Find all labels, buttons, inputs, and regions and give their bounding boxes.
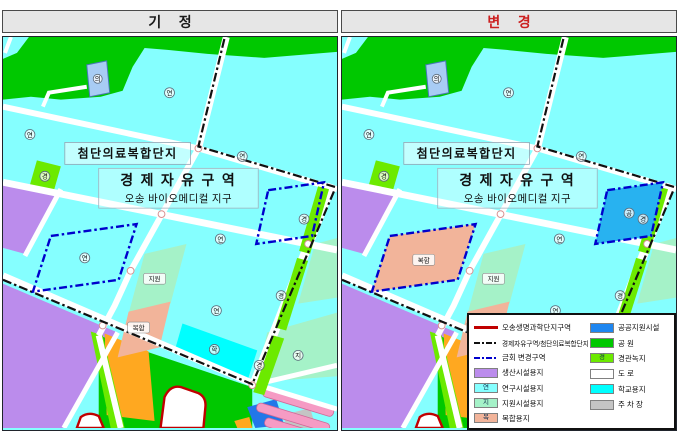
map-label: 의 bbox=[434, 74, 440, 83]
lifescience-boundary bbox=[161, 387, 206, 428]
legend: 오송생명과학단지구역경제자유구역/첨단의료복합단지금회 변경구역생산시설용지연연… bbox=[467, 313, 676, 430]
legend-item: 오송생명과학단지구역 bbox=[474, 320, 590, 335]
legend-label: 경제자유구역/첨단의료복합단지 bbox=[502, 338, 589, 348]
legend-label: 공 원 bbox=[618, 338, 634, 349]
legend-label: 지원시설용지 bbox=[502, 398, 543, 409]
figure-map-comparison: 기 정 연연연연연경경경경학의지지원복합연첨단의료복합단지경 제 자 유 구 역… bbox=[0, 0, 680, 433]
legend-swatch-glyph: 복 bbox=[483, 415, 489, 422]
map-label: 복합 bbox=[418, 255, 430, 264]
road-junction bbox=[127, 267, 134, 274]
legend-label: 복합용지 bbox=[502, 413, 530, 424]
legend-label: 경관녹지 bbox=[618, 353, 646, 364]
map-label: 연 bbox=[366, 131, 372, 139]
legend-label: 금회 변경구역 bbox=[502, 352, 545, 363]
legend-column-left: 오송생명과학단지구역경제자유구역/첨단의료복합단지금회 변경구역생산시설용지연연… bbox=[474, 320, 590, 426]
legend-swatch bbox=[590, 323, 614, 333]
legend-label: 생산시설용지 bbox=[502, 367, 543, 378]
lifescience-boundary bbox=[416, 414, 443, 428]
legend-swatch bbox=[474, 342, 498, 344]
legend-item: 생산시설용지 bbox=[474, 365, 590, 380]
map-label: 지원 bbox=[149, 274, 161, 283]
map-label: 첨단의료복합단지 bbox=[417, 145, 517, 160]
legend-item: 연연구시설용지 bbox=[474, 381, 590, 396]
legend-item: 경경관녹지 bbox=[590, 351, 672, 366]
legend-label: 도 로 bbox=[618, 368, 634, 379]
map-label: 공 bbox=[626, 209, 632, 217]
panel-before-title: 기 정 bbox=[141, 12, 198, 32]
legend-item: 지지원시설용지 bbox=[474, 396, 590, 411]
map-label: 연 bbox=[506, 89, 512, 97]
legend-item: 공 원 bbox=[590, 335, 672, 350]
map-label: 경 bbox=[640, 214, 646, 223]
map-label: 의 bbox=[95, 74, 101, 83]
map-label: 연 bbox=[239, 153, 245, 161]
panel-before: 기 정 연연연연연경경경경학의지지원복합연첨단의료복합단지경 제 자 유 구 역… bbox=[2, 10, 338, 431]
map-label: 오송 바이오메디컬 지구 bbox=[125, 192, 232, 205]
legend-swatch bbox=[590, 384, 614, 394]
panel-after: 변 경 연연연연연경경경경학의지지원복합복합공첨단의료복합단지경 제 자 유 구… bbox=[341, 10, 677, 431]
map-before: 연연연연연경경경경학의지지원복합연첨단의료복합단지경 제 자 유 구 역오송 바… bbox=[2, 36, 338, 431]
map-label: 경 bbox=[381, 172, 387, 181]
map-label: 연 bbox=[217, 235, 223, 243]
legend-swatch: 경 bbox=[590, 353, 614, 363]
map-label: 오송 바이오메디컬 지구 bbox=[464, 192, 571, 205]
legend-label: 공공지원시설 bbox=[618, 322, 659, 333]
legend-item: 학교용지 bbox=[590, 382, 672, 397]
legend-item: 도 로 bbox=[590, 366, 672, 381]
panel-before-header: 기 정 bbox=[2, 10, 338, 33]
map-before-canvas: 연연연연연경경경경학의지지원복합연첨단의료복합단지경 제 자 유 구 역오송 바… bbox=[3, 37, 337, 428]
road-junction bbox=[158, 211, 165, 218]
road-junction bbox=[466, 267, 473, 274]
legend-column-right: 공공지원시설공 원경경관녹지도 로학교용지주 차 장 bbox=[590, 320, 672, 426]
road-junction bbox=[497, 211, 504, 218]
map-label: 연 bbox=[556, 235, 562, 243]
map-label: 학 bbox=[211, 345, 217, 354]
map-label: 경 bbox=[617, 291, 623, 300]
legend-swatch-glyph: 경 bbox=[599, 355, 605, 362]
map-label: 연 bbox=[167, 89, 173, 97]
legend-label: 오송생명과학단지구역 bbox=[502, 322, 571, 333]
map-label: 연 bbox=[578, 153, 584, 161]
legend-item: 경제자유구역/첨단의료복합단지 bbox=[474, 335, 590, 350]
map-after: 연연연연연경경경경학의지지원복합복합공첨단의료복합단지경 제 자 유 구 역오송… bbox=[341, 36, 677, 431]
legend-swatch bbox=[590, 338, 614, 348]
map-label: 경 bbox=[301, 214, 307, 223]
legend-swatch bbox=[590, 400, 614, 410]
legend-swatch: 연 bbox=[474, 383, 498, 393]
legend-item: 공공지원시설 bbox=[590, 320, 672, 335]
map-label: 지원 bbox=[488, 274, 500, 283]
legend-item: 복복합용지 bbox=[474, 411, 590, 426]
panel-after-title: 변 경 bbox=[480, 12, 537, 32]
panel-after-header: 변 경 bbox=[341, 10, 677, 33]
legend-swatch bbox=[474, 357, 498, 359]
legend-swatch-glyph: 지 bbox=[483, 400, 489, 407]
map-label: 연 bbox=[27, 131, 33, 139]
map-graphics: 연연연연연경경경경학의지지원복합연첨단의료복합단지경 제 자 유 구 역오송 바… bbox=[3, 37, 337, 428]
legend-swatch bbox=[590, 369, 614, 379]
legend-label: 주 차 장 bbox=[618, 399, 643, 410]
map-label: 경 제 자 유 구 역 bbox=[120, 172, 236, 189]
legend-swatch-glyph: 연 bbox=[483, 385, 489, 392]
map-label: 첨단의료복합단지 bbox=[78, 145, 178, 160]
lifescience-boundary bbox=[77, 414, 104, 428]
legend-item: 금회 변경구역 bbox=[474, 350, 590, 365]
map-label: 연 bbox=[82, 254, 88, 262]
map-label: 경 제 자 유 구 역 bbox=[459, 172, 575, 189]
legend-swatch bbox=[474, 368, 498, 378]
map-label: 지 bbox=[295, 351, 301, 360]
map-label: 경 bbox=[278, 291, 284, 300]
legend-swatch bbox=[474, 326, 498, 328]
legend-swatch: 복 bbox=[474, 413, 498, 423]
map-label: 경 bbox=[42, 172, 48, 181]
map-label: 경 bbox=[256, 361, 262, 370]
map-label: 연 bbox=[213, 307, 219, 315]
map-label: 복합 bbox=[133, 323, 145, 332]
legend-item: 주 차 장 bbox=[590, 397, 672, 412]
legend-swatch: 지 bbox=[474, 398, 498, 408]
legend-label: 연구시설용지 bbox=[502, 383, 543, 394]
legend-label: 학교용지 bbox=[618, 384, 646, 395]
